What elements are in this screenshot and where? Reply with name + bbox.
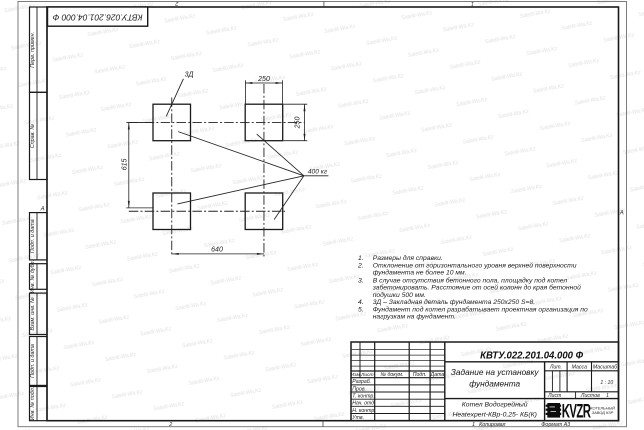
svg-text:В случае отсутствия бетонного: В случае отсутствия бетонного пола, площ…	[373, 276, 568, 284]
svg-text:Дата: Дата	[430, 372, 445, 378]
svg-text:Инв. № подл.: Инв. № подл.	[30, 387, 36, 420]
svg-text:5.: 5.	[358, 307, 364, 314]
svg-text:ЗАВОД КЗР: ЗАВОД КЗР	[592, 410, 614, 415]
svg-text:1 : 10: 1 : 10	[600, 380, 613, 386]
svg-text:3Д: 3Д	[185, 71, 194, 78]
svg-text:2: 2	[168, 422, 172, 428]
svg-text:КВТУ.026.201.04.000 Ф: КВТУ.026.201.04.000 Ф	[52, 13, 142, 23]
svg-text:Лист: Лист	[547, 393, 562, 399]
svg-text:фундамента: фундамента	[469, 378, 520, 388]
svg-text:КВТУ.022.201.04.000 Ф: КВТУ.022.201.04.000 Ф	[480, 350, 583, 361]
svg-text:Heatexpert-КВр-0,25- КБ(К): Heatexpert-КВр-0,25- КБ(К)	[452, 412, 536, 419]
svg-text:400 кг: 400 кг	[308, 169, 328, 176]
svg-text:3Д – Закладная деталь фундамен: 3Д – Закладная деталь фундамента 250х250…	[373, 298, 536, 306]
svg-text:№ докум.: № докум.	[380, 372, 403, 378]
svg-text:1: 1	[472, 422, 475, 428]
svg-text:KVZR: KVZR	[562, 400, 591, 422]
svg-text:А: А	[40, 207, 45, 213]
svg-text:подушки 500 мм.: подушки 500 мм.	[373, 291, 426, 299]
svg-text:Т. контр.: Т. контр.	[352, 394, 374, 400]
svg-text:Котел Водогрейный: Котел Водогрейный	[462, 400, 528, 408]
svg-text:Формат А3: Формат А3	[541, 422, 570, 428]
svg-text:Подп. и дата: Подп. и дата	[30, 344, 36, 378]
svg-text:Н. контр.: Н. контр.	[352, 408, 375, 414]
svg-text:Масштаб: Масштаб	[593, 364, 618, 370]
svg-text:Нач. отд: Нач. отд	[352, 401, 374, 407]
svg-text:Размеры для справки.: Размеры для справки.	[373, 254, 443, 262]
svg-text:Отклонение от горизонтального: Отклонение от горизонтального уровня вер…	[373, 262, 577, 270]
svg-text:Лит.: Лит.	[549, 364, 562, 370]
svg-text:Пров.: Пров.	[352, 386, 366, 392]
svg-text:Изм: Изм	[351, 372, 361, 378]
svg-text:Лист: Лист	[360, 372, 374, 378]
svg-text:Разраб.: Разраб.	[352, 379, 371, 385]
svg-text:640: 640	[211, 247, 223, 254]
svg-text:250: 250	[295, 117, 302, 130]
svg-text:забетонировать. Расстояние от: забетонировать. Расстояние от осей колон…	[372, 284, 581, 292]
svg-text:4.: 4.	[358, 299, 364, 306]
svg-text:Подп.: Подп.	[413, 372, 427, 378]
svg-text:2: 2	[175, 0, 179, 6]
svg-text:3.: 3.	[358, 277, 364, 284]
svg-text:1.: 1.	[358, 255, 364, 262]
svg-text:Инв. № дубл.: Инв. № дубл.	[30, 260, 36, 293]
svg-text:1: 1	[606, 393, 609, 399]
svg-text:А: А	[619, 211, 624, 217]
svg-text:1: 1	[471, 0, 474, 6]
svg-text:Перв. примен.: Перв. примен.	[30, 32, 36, 68]
svg-text:Задание на установку: Задание на установку	[451, 367, 540, 377]
svg-text:Масса: Масса	[572, 364, 587, 370]
svg-text:250: 250	[257, 76, 270, 83]
svg-text:Взам. инв. №: Взам. инв. №	[30, 297, 36, 331]
svg-text:Справ. №: Справ. №	[30, 124, 36, 149]
svg-text:2.: 2.	[357, 263, 364, 270]
svg-text:Подп. и дата: Подп. и дата	[30, 219, 36, 253]
svg-text:Копировал: Копировал	[479, 422, 505, 428]
svg-text:нагрузкам на фундамент.: нагрузкам на фундамент.	[373, 313, 456, 321]
svg-text:Утв.: Утв.	[352, 415, 364, 421]
svg-text:Фундамент под котел разрабатыв: Фундамент под котел разрабатывает проект…	[373, 306, 588, 314]
svg-text:615: 615	[122, 158, 129, 170]
svg-text:фундамента не более 10 мм.: фундамента не более 10 мм.	[373, 269, 467, 277]
svg-text:Листов: Листов	[580, 393, 600, 399]
